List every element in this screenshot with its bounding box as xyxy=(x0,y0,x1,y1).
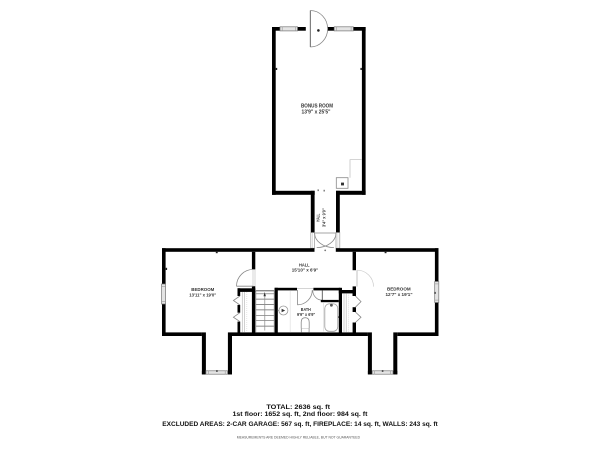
svg-text:1st floor: 1652 sq. ft, 2nd fl: 1st floor: 1652 sq. ft, 2nd floor: 984 s… xyxy=(233,411,368,418)
svg-text:EXCLUDED AREAS: 2-CAR GARAGE:: EXCLUDED AREAS: 2-CAR GARAGE: 567 sq. ft… xyxy=(162,421,438,428)
svg-text:3'4" x 9'9": 3'4" x 9'9" xyxy=(322,208,327,227)
svg-text:HALL: HALL xyxy=(316,214,321,222)
svg-text:15'10" x 6'9": 15'10" x 6'9" xyxy=(292,268,319,273)
svg-text:12'7" x 19'1": 12'7" x 19'1" xyxy=(386,292,413,297)
svg-text:MEASUREMENTS ARE DEEMED HIGHLY: MEASUREMENTS ARE DEEMED HIGHLY RELIABLE,… xyxy=(237,436,361,440)
svg-text:9'9" x 6'9": 9'9" x 6'9" xyxy=(297,312,315,317)
svg-text:13'9" x 25'5": 13'9" x 25'5" xyxy=(302,109,332,115)
svg-text:TOTAL: 2636 sq. ft: TOTAL: 2636 sq. ft xyxy=(266,404,331,411)
svg-text:13'11" x 19'0": 13'11" x 19'0" xyxy=(189,292,216,297)
